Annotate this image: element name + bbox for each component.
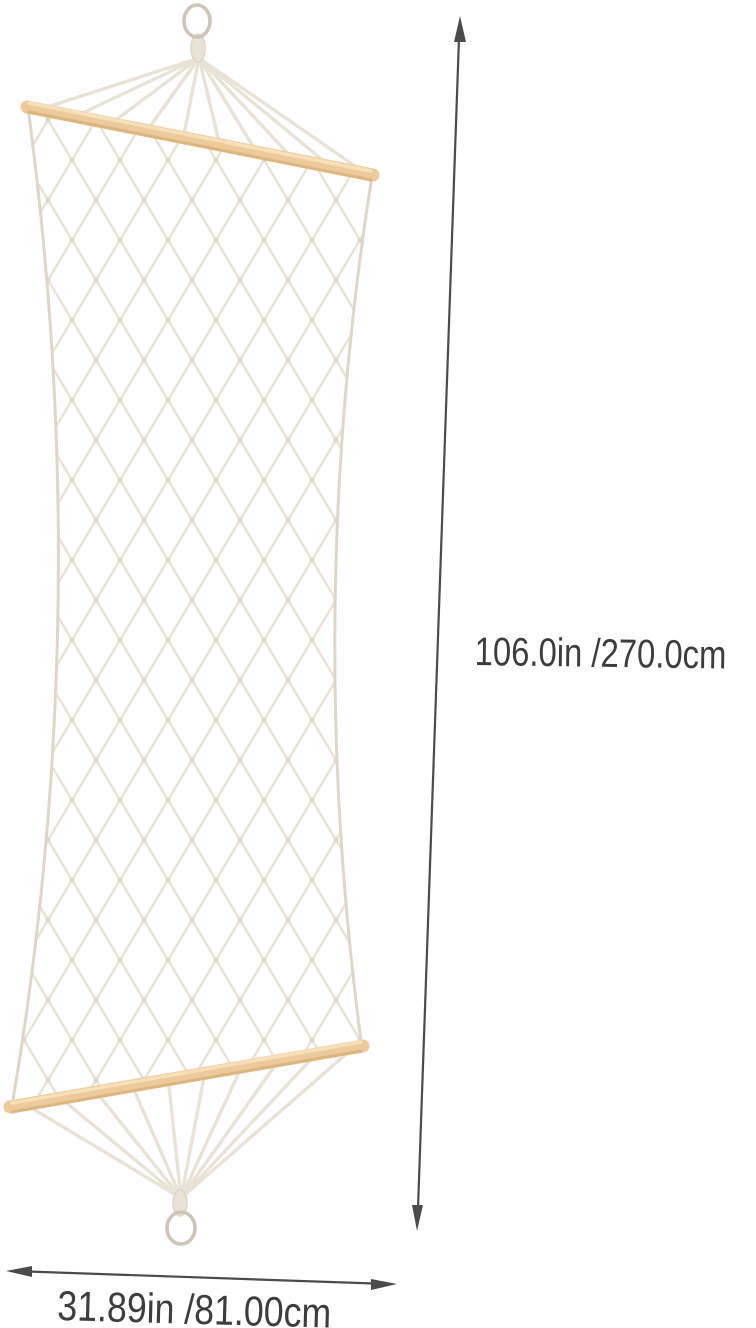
- hammock-net-body: [12, 108, 372, 1106]
- product-dimension-image: 106.0in /270.0cm 31.89in /81.00cm: [0, 0, 756, 1328]
- height-dimension-arrow: [412, 16, 466, 1231]
- width-dimension-label: 31.89in /81.00cm: [57, 1285, 332, 1328]
- height-dimension-label: 106.0in /270.0cm: [474, 632, 726, 676]
- bottom-hanging-ring: [167, 1212, 195, 1244]
- top-hanging-ring: [184, 5, 210, 37]
